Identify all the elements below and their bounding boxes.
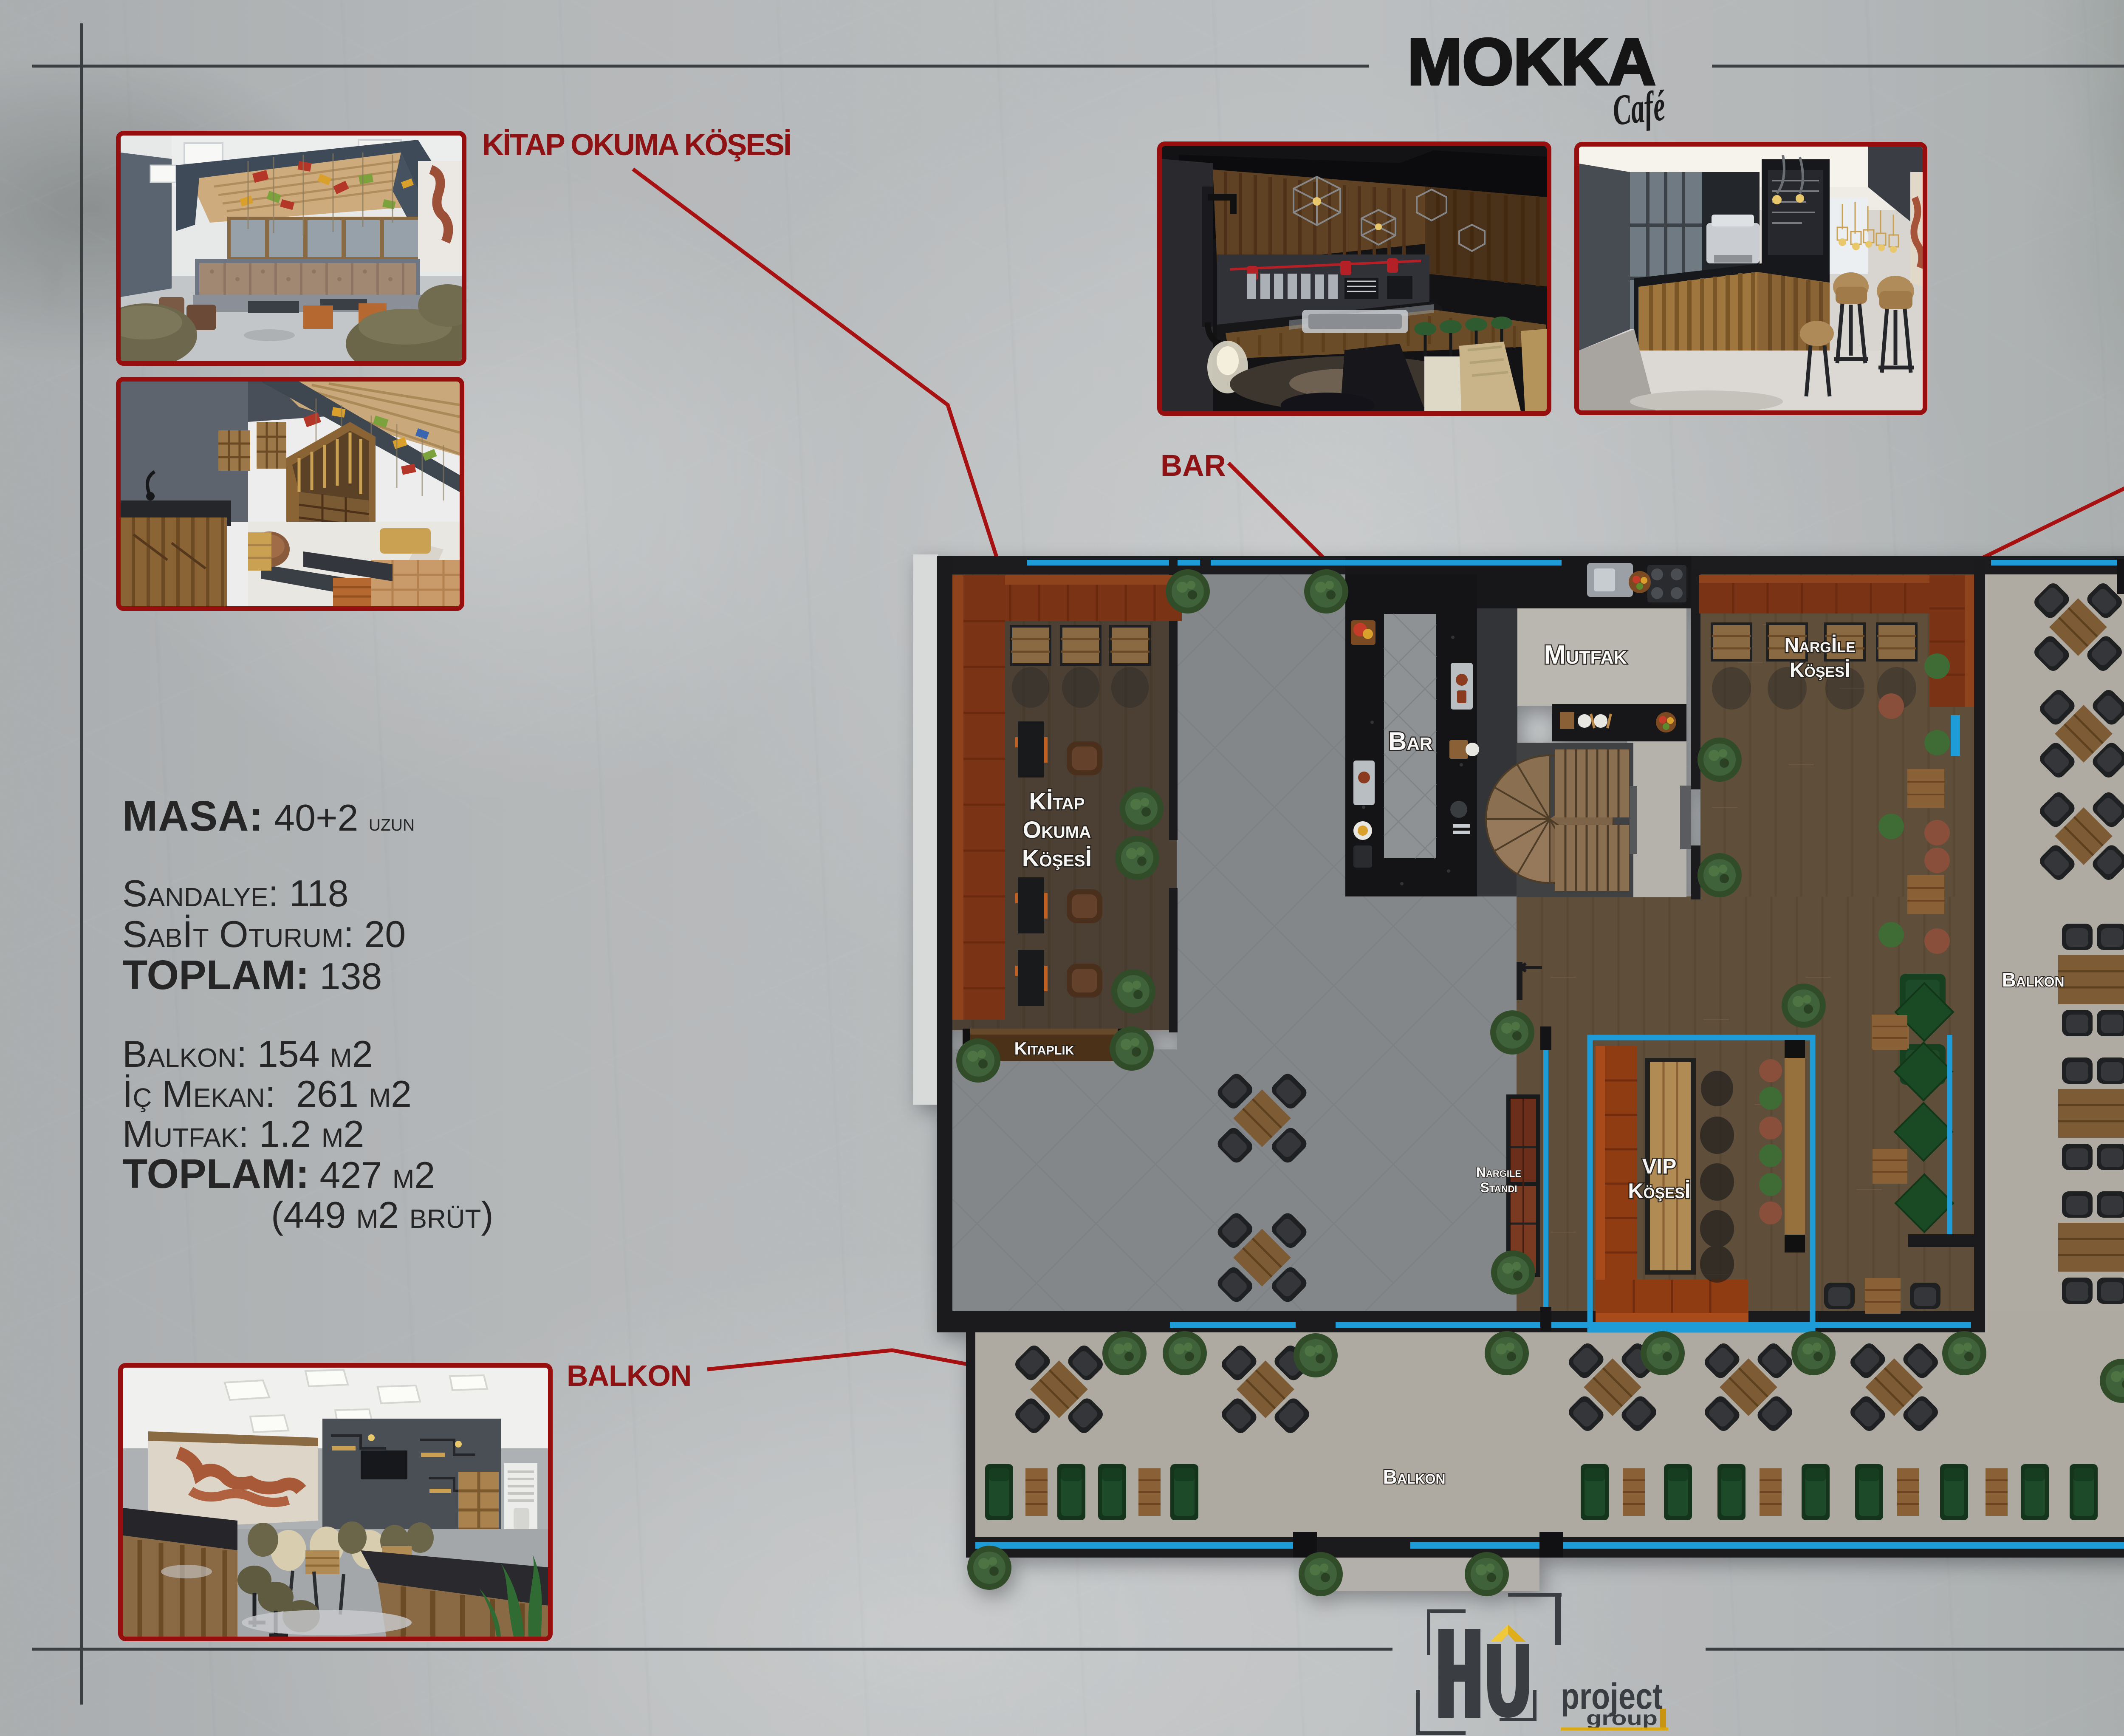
svg-text:Okuma: Okuma xyxy=(1023,816,1091,843)
svg-text:Kİtap: Kİtap xyxy=(1029,788,1085,814)
svg-text:Balkon: Balkon xyxy=(1383,1466,1446,1488)
svg-text:group: group xyxy=(1586,1707,1658,1729)
svg-text:Nargıle: Nargıle xyxy=(1476,1165,1521,1180)
svg-text:Standı: Standı xyxy=(1480,1180,1517,1195)
svg-text:Mutfak: Mutfak xyxy=(1544,640,1627,670)
svg-text:VIP: VIP xyxy=(1642,1154,1677,1178)
svg-text:Köşesİ: Köşesİ xyxy=(1628,1179,1690,1203)
svg-text:Balkon: Balkon xyxy=(2002,969,2065,991)
svg-text:Köşesİ: Köşesİ xyxy=(1790,659,1850,681)
svg-text:Bar: Bar xyxy=(1388,727,1432,755)
svg-text:Nargİle: Nargİle xyxy=(1785,634,1856,657)
svg-text:Köşesİ: Köşesİ xyxy=(1022,845,1092,871)
svg-text:Kıtaplık: Kıtaplık xyxy=(1014,1038,1074,1058)
